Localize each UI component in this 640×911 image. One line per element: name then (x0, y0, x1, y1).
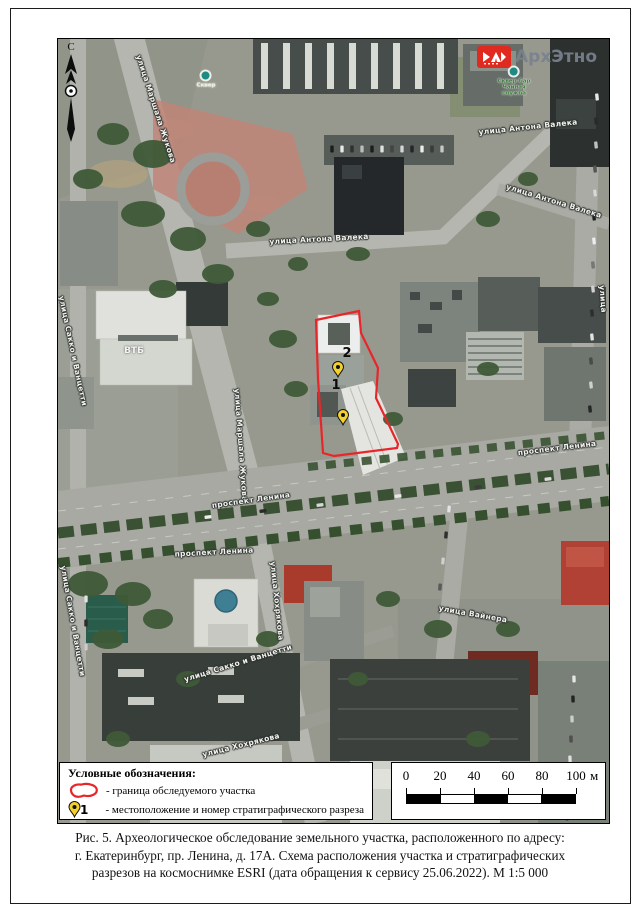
street-label: проспект Ленина (517, 439, 596, 458)
street-label: улица Маршала Жукова (134, 54, 178, 164)
legend-box: Условные обозначения: - граница обследуе… (59, 762, 373, 820)
caption-line: г. Екатеринбург, пр. Ленина, д. 17А. Схе… (20, 847, 620, 865)
map-overlay: улица Маршала Жуковаулица Антона Валекау… (58, 39, 609, 823)
scalebar-tick (576, 788, 577, 794)
marker-number: 2 (343, 346, 352, 361)
scalebar-segment (508, 795, 542, 803)
scalebar-segment (441, 795, 475, 803)
street-label: улица Антона Валека (505, 182, 603, 220)
scalebar-tick (406, 788, 407, 794)
scalebar-tick (474, 788, 475, 794)
poi-label: Сквер-барЧайнаяслужба (498, 79, 531, 97)
street-label: улица Антона Валека (478, 117, 578, 136)
scalebar-tick-label: 20 (434, 768, 447, 784)
logo: АрхЭтно (477, 46, 597, 68)
marker-number: 1 (332, 378, 341, 393)
street-label: улица Антона Валека (269, 232, 369, 246)
scalebar-tick-label: 40 (468, 768, 481, 784)
caption: Рис. 5. Археологическое обследование зем… (20, 829, 620, 882)
legend-item-label: - граница обследуемого участка (106, 785, 255, 797)
legend-item-label: - местоположение и номер стратиграфическ… (105, 804, 364, 816)
scalebar-tick (542, 788, 543, 794)
street-label: улица Сакко и Ванцетти (59, 565, 87, 677)
street-label: улица Сакко и Ванцетти (57, 295, 89, 407)
scalebar-tick (440, 788, 441, 794)
scalebar-tick (508, 788, 509, 794)
caption-line: разрезов на космоснимке ESRI (дата обращ… (20, 864, 620, 882)
scalebar-tick-label: 100 (566, 768, 586, 784)
street-label: улица Хохрякова (268, 561, 285, 641)
poi-label: Сквер (197, 83, 216, 89)
scalebar-tick-label: 60 (502, 768, 515, 784)
scalebar-segment (541, 795, 575, 803)
street-label: улица Хохрякова (201, 731, 280, 759)
north-label: С (67, 41, 74, 53)
street-label: улица Сакко и Ванцетти (183, 642, 293, 683)
building-label: ВТБ (124, 346, 144, 356)
legend-item: - граница обследуемого участка (68, 781, 364, 800)
scalebar-unit: м (590, 768, 598, 784)
street-label: улица Вайнера (438, 604, 508, 625)
map-figure: улица Маршала Жуковаулица Антона Валекау… (57, 38, 610, 824)
scalebar-box: м 020406080100 (391, 762, 606, 820)
figure-page: улица Маршала Жуковаулица Антона Валекау… (0, 0, 640, 911)
street-label: улица Маршала Жукова (233, 388, 250, 501)
scalebar-segment (407, 795, 441, 803)
poi-marker: Сквер (197, 70, 216, 89)
marker-pin: 1 (337, 409, 350, 431)
caption-line: Рис. 5. Археологическое обследование зем… (20, 829, 620, 847)
north-arrow: С (60, 40, 82, 150)
logo-icon (477, 46, 511, 68)
legend-pin-number: 1 (80, 803, 88, 817)
scalebar-tick-label: 80 (536, 768, 549, 784)
street-label: улица (598, 285, 609, 313)
poi-marker: Сквер-барЧайнаяслужба (498, 66, 531, 97)
legend-title: Условные обозначения: (68, 766, 364, 781)
logo-text: АрхЭтно (515, 47, 597, 67)
poi-icon (200, 70, 212, 82)
scalebar-segment (474, 795, 508, 803)
legend-item: 1- местоположение и номер стратиграфичес… (68, 800, 364, 819)
street-label: проспект Ленина (174, 545, 253, 558)
scalebar-tick-label: 0 (403, 768, 410, 784)
street-label: проспект Ленина (211, 490, 290, 510)
pin-icon: 1 (68, 801, 105, 818)
site-boundary-icon (68, 781, 106, 801)
scalebar-bar (406, 794, 576, 804)
